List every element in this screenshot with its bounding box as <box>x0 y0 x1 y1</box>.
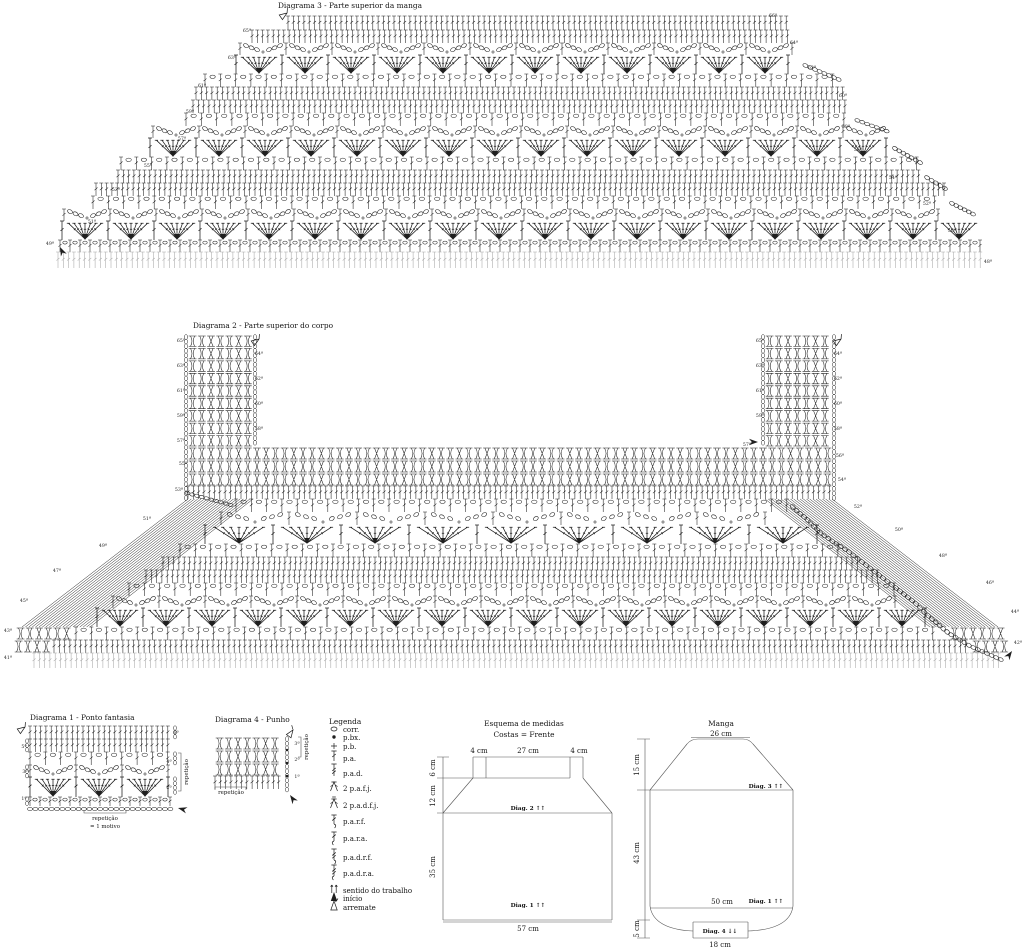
diagram-reference-label: Diag. 3 ↑↑ <box>749 783 784 790</box>
row-label: 56ª <box>854 147 863 153</box>
stitch-band-rib <box>189 436 252 446</box>
start-arrow-icon <box>287 793 297 804</box>
row-label: 61ª <box>177 388 186 394</box>
row-label: 55ª <box>144 163 153 169</box>
crochet-pattern-sheet: 49ª51ª53ª55ª57ª59ª61ª63ª65ª48ª50ª52ª54ª5… <box>0 0 1024 949</box>
diagram3-title: Diagrama 3 - Parte superior da manga <box>278 1 423 10</box>
row-label: 51ª <box>143 516 152 522</box>
row-label: 66ª <box>769 13 778 19</box>
row-label: 3ª <box>294 741 300 747</box>
stitch-band-rib <box>766 398 829 409</box>
motif-label: = 1 motivo <box>90 824 120 830</box>
stitch-band-rib <box>17 628 71 639</box>
diagram4-cuff-chart: 3ª2ª1ªrepetiçãorepetição <box>213 725 310 804</box>
diagram2-title: Diagrama 2 - Parte superior do corpo <box>193 321 334 330</box>
chain-stitch-icon <box>331 727 337 731</box>
legend-item: p.a.d. <box>331 764 362 778</box>
row-label: 59ª <box>756 413 765 419</box>
stitch-band-rib <box>766 423 829 434</box>
row-label: 6ª <box>173 730 179 736</box>
row-label: 60ª <box>834 401 843 407</box>
stitch-band-rib <box>189 386 252 396</box>
row-label: 51ª <box>88 219 97 225</box>
repeat-label: repetição <box>92 815 118 822</box>
row-label: 62ª <box>255 376 264 382</box>
edge-chain <box>892 147 922 165</box>
stitch-band-rib <box>15 641 50 652</box>
row-label: 54ª <box>838 477 847 483</box>
row-label: 54ª <box>889 175 898 181</box>
row-label: 65ª <box>243 28 252 34</box>
row-label: 50ª <box>895 527 904 533</box>
diagram-reference-label: Diag. 1 ↑↑ <box>511 902 546 909</box>
legend-item: p.a. <box>331 751 356 763</box>
bind-off-icon <box>286 725 298 738</box>
diagram-reference-label: Diag. 2 ↑↑ <box>511 805 546 812</box>
stitch-band-rib <box>766 373 829 384</box>
row-label: 49ª <box>46 241 55 247</box>
stitch-band-mesh <box>234 499 789 512</box>
row-label: 65ª <box>177 338 186 344</box>
stitch-band-meshS <box>28 797 172 806</box>
measure-label: 5 cm <box>633 920 641 938</box>
row-label: 57ª <box>177 438 186 444</box>
stitch-band-rib <box>951 628 1005 639</box>
raglan-hatch <box>765 499 998 627</box>
esquema-title: Esquema de medidas <box>484 719 564 728</box>
stitch-band-rib <box>189 474 832 485</box>
stitch-band-rib <box>189 361 252 371</box>
fan-apex <box>236 538 786 544</box>
tr-stitch-icon <box>331 764 336 776</box>
diagram1-fancy-stitch-chart: 5ª3ª1ª6ª4ª2ªrepetiçãorepetição= 1 motivo <box>17 722 190 830</box>
bind-off-icon <box>17 722 30 734</box>
edge-chain <box>805 517 823 535</box>
edge-chain <box>832 335 835 501</box>
row-label: 44ª <box>1011 609 1020 615</box>
row-label: 53ª <box>112 187 121 193</box>
row-label: 60ª <box>839 93 848 99</box>
row-label: 5ª <box>21 744 27 750</box>
row-label: 63ª <box>228 55 237 61</box>
stitch-band-mesh <box>119 157 919 170</box>
measure-label: 12 cm <box>429 785 437 807</box>
fptr-stitch-icon <box>331 849 336 864</box>
start-stitch-icon <box>331 892 337 901</box>
legend-item-label: 2 p.a.f.j. <box>343 785 372 793</box>
repeat-label: repetição <box>218 789 244 796</box>
fpdc-stitch-icon <box>331 815 336 828</box>
row-label: 57ª <box>178 136 187 142</box>
legend-item: 2 p.a.d.f.j. <box>330 797 378 810</box>
stitch-band-dc <box>28 726 170 739</box>
legend-item-label: p.a.d.r.f. <box>343 854 372 862</box>
stitch-band-rib <box>189 398 252 409</box>
stitch-band-fan <box>148 138 888 157</box>
repeat-label: repetição <box>183 759 190 785</box>
chain-ovals <box>28 807 173 810</box>
stitch-band-dc <box>144 570 879 583</box>
measure-label: 4 cm <box>470 747 488 755</box>
stitch-band-rib <box>216 738 279 749</box>
stitch-band-rib <box>189 423 252 434</box>
legend-item: 2 p.a.f.j. <box>330 782 371 793</box>
row-label: 52ª <box>854 504 863 510</box>
start-arrow-icon <box>749 439 758 445</box>
legend-item-label: p.a.d. <box>343 770 363 778</box>
row-label: 62ª <box>834 376 843 382</box>
legend-item-label: início <box>343 895 362 903</box>
chain-ovals <box>185 545 833 548</box>
stitch-band-dc <box>116 170 920 183</box>
row-label: 52ª <box>923 201 932 207</box>
dir-stitch-icon <box>331 885 338 893</box>
row-label: 57ª <box>743 442 752 448</box>
legend-item: p.a.r.f. <box>331 815 365 828</box>
measure-label: 35 cm <box>429 856 437 878</box>
dc-stitch-icon <box>331 751 336 761</box>
row-label: 63ª <box>177 363 186 369</box>
stitch-band-dc <box>94 183 946 196</box>
measure-label: 50 cm <box>711 898 733 906</box>
chain-ovals <box>98 197 930 200</box>
legend-item-label: p.a.d.r.a. <box>343 870 374 878</box>
stitch-band-dc <box>191 100 847 113</box>
measurement-schematic-body: 4 cm27 cm4 cm6 cm12 cm35 cm57 cmDiag. 2 … <box>429 747 612 933</box>
stitch-band-rib <box>766 386 829 396</box>
row-label: 2ª <box>294 757 300 763</box>
measure-label: 57 cm <box>517 925 539 933</box>
stitch-band-fan <box>95 608 927 627</box>
bind-off-icon <box>251 334 264 346</box>
legend-item-label: corr. <box>343 726 359 734</box>
diagram3-sleeve-top-chart: 49ª51ª53ª55ª57ª59ª61ª63ª65ª48ª50ª52ª54ª5… <box>46 8 993 268</box>
legend-item-label: arremate <box>343 904 376 912</box>
row-label: 58ª <box>834 426 843 432</box>
stitch-band-mesh <box>91 196 937 209</box>
stitch-band-rib <box>189 336 252 346</box>
row-label: 65ª <box>756 338 765 344</box>
stitch-band-rib <box>973 641 1008 652</box>
stitch-band-rib <box>216 764 279 775</box>
stitch-band-dc <box>161 557 859 570</box>
sleeve-outline <box>637 738 793 939</box>
row-label: 60ª <box>255 401 264 407</box>
row-label: 4ª <box>166 759 172 765</box>
row-label: 63ª <box>756 363 765 369</box>
legend-item-label: p.bx. <box>343 734 360 742</box>
legend-item-label: sentido do trabalho <box>343 887 412 895</box>
stitch-band-dc <box>250 30 789 43</box>
measure-label: 27 cm <box>517 747 539 755</box>
legend-item: sentido do trabalho <box>331 885 412 895</box>
measure-label: 43 cm <box>633 842 641 864</box>
start-arrow-icon <box>177 805 187 814</box>
row-label: 1ª <box>21 796 27 802</box>
stitch-band-mesh <box>28 752 170 765</box>
diagram1-title: Diagrama 1 - Ponto fantasia <box>30 713 135 722</box>
row-label: 50ª <box>948 228 957 234</box>
legend-item-label: p.a. <box>343 755 356 763</box>
measure-label: 6 cm <box>429 759 437 777</box>
stitch-band-arc <box>151 126 868 138</box>
legend-item-label: p.a.r.f. <box>343 818 365 826</box>
stitch-band-arc <box>62 209 940 221</box>
stitch-band-arc <box>111 596 897 608</box>
pattern-canvas: 49ª51ª53ª55ª57ª59ª61ª63ª65ª48ª50ª52ª54ª5… <box>0 0 1024 949</box>
stitch-band-rib <box>189 373 252 384</box>
measure-label: 4 cm <box>570 747 588 755</box>
row-label: 42ª <box>1014 640 1023 646</box>
row-label: 58ª <box>255 426 264 432</box>
row-label: 3ª <box>22 769 28 775</box>
start-arrow-icon <box>57 246 67 257</box>
repeat-bracket <box>178 753 181 791</box>
stitch-band-pale <box>32 653 1001 668</box>
repeat-label: repetição <box>303 734 310 760</box>
row-label: 61ª <box>756 388 765 394</box>
stitch-band-rib <box>766 411 829 421</box>
diagram2-body-top-chart: 65ª63ª61ª59ª57ª55ª53ª51ª49ª47ª45ª43ª41ª6… <box>4 334 1023 668</box>
legend-title: Legenda <box>329 717 362 726</box>
stitch-band-dc <box>286 16 788 30</box>
repeat-bracket <box>298 737 301 757</box>
stitch-band-dc <box>28 739 170 752</box>
legend-item-label: 2 p.a.d.f.j. <box>343 802 378 810</box>
row-label: 48ª <box>984 259 993 265</box>
stitch-band-rib <box>216 751 279 762</box>
stitch-band-arc <box>219 512 767 525</box>
slip-stitch-icon <box>332 735 335 738</box>
stitch-band-rib <box>766 336 829 346</box>
manga-top-width-label: 26 cm <box>710 730 732 738</box>
stitch-band-rib <box>766 348 829 359</box>
legend-item: p.a.d.r.f. <box>331 849 372 864</box>
edge-chain <box>285 737 288 792</box>
row-label: 59ª <box>186 109 195 115</box>
stitch-band-rib <box>189 448 832 459</box>
stitch-band-rib <box>189 461 832 472</box>
sc-stitch-icon <box>331 743 337 749</box>
row-label: 64ª <box>790 40 799 46</box>
stitch-band-pale <box>56 252 982 268</box>
row-label: 53ª <box>175 487 184 493</box>
row-label: 61ª <box>198 83 207 89</box>
row-label: 56ª <box>836 453 845 459</box>
row-label: 2ª <box>166 785 172 791</box>
chain-ovals <box>191 114 839 117</box>
row-label: 45ª <box>20 598 29 604</box>
stitch-band-dc <box>52 640 968 653</box>
chain-ovals <box>210 75 827 78</box>
row-label: 64ª <box>255 351 264 357</box>
manga-title: Manga <box>708 719 734 728</box>
measurement-schematic-sleeve: 15 cm43 cm5 cm50 cm18 cmDiag. 3 ↑↑Diag. … <box>633 738 793 949</box>
stitch-band-mesh <box>74 627 935 640</box>
row-label: 48ª <box>939 553 948 559</box>
edge-chain <box>950 202 976 216</box>
stitch-band-fan <box>234 55 790 74</box>
body-outline <box>437 757 612 922</box>
stitch-band-mesh <box>203 74 834 87</box>
row-label: 41ª <box>4 655 13 661</box>
legend-item: p.bx. <box>332 734 360 742</box>
legend-item: p.a.d.r.a. <box>331 865 374 880</box>
measure-label: 18 cm <box>709 941 731 949</box>
stitch-band-dc <box>186 486 831 499</box>
stitch-band-rib <box>766 361 829 371</box>
row-label: 47ª <box>53 568 62 574</box>
bptr-stitch-icon <box>331 865 336 880</box>
dc2tog-stitch-icon <box>330 782 337 791</box>
legend-item-label: p.b. <box>343 743 356 751</box>
legend-item: p.b. <box>331 743 356 751</box>
stitch-band-rib <box>189 348 252 359</box>
row-label: 59ª <box>177 413 186 419</box>
legend-item-label: p.a.r.a. <box>343 835 367 843</box>
diagram4-title: Diagrama 4 - Punho <box>215 715 290 724</box>
turning-chain <box>174 752 177 765</box>
stitch-band-fan <box>60 221 977 240</box>
row-label: 43ª <box>4 628 13 634</box>
legend-item: p.a.r.a. <box>331 832 367 845</box>
stitch-band-rib <box>766 436 829 446</box>
stitch-band-mesh <box>127 583 896 596</box>
tr2tog-stitch-icon <box>330 797 337 808</box>
fan-apex <box>50 791 148 797</box>
raglan-hatch <box>22 499 253 627</box>
row-label: 1ª <box>294 774 300 780</box>
esquema-subtitle: Costas = Frente <box>493 730 554 739</box>
row-label: 62ª <box>808 65 817 71</box>
legend-item: corr. <box>331 726 359 734</box>
legend: corr.p.bx.p.b.p.a.p.a.d.2 p.a.f.j.2 p.a.… <box>330 726 412 912</box>
stitch-band-rib <box>189 411 252 421</box>
turning-chain <box>174 777 177 794</box>
row-label: 64ª <box>834 351 843 357</box>
bpdc-stitch-icon <box>331 832 336 845</box>
row-label: 49ª <box>99 543 108 549</box>
diagram-reference-label: Diag. 1 ↑↑ <box>749 898 784 905</box>
stitch-band-dc <box>194 87 845 100</box>
stitch-band-arc <box>238 43 794 55</box>
row-label: 55ª <box>179 461 188 467</box>
diagram-reference-label: Diag. 4 ↓↓ <box>703 928 738 935</box>
row-label: 58ª <box>842 124 851 130</box>
row-label: 46ª <box>986 580 995 586</box>
measure-label: 15 cm <box>633 754 641 776</box>
chain-ovals <box>35 753 163 756</box>
